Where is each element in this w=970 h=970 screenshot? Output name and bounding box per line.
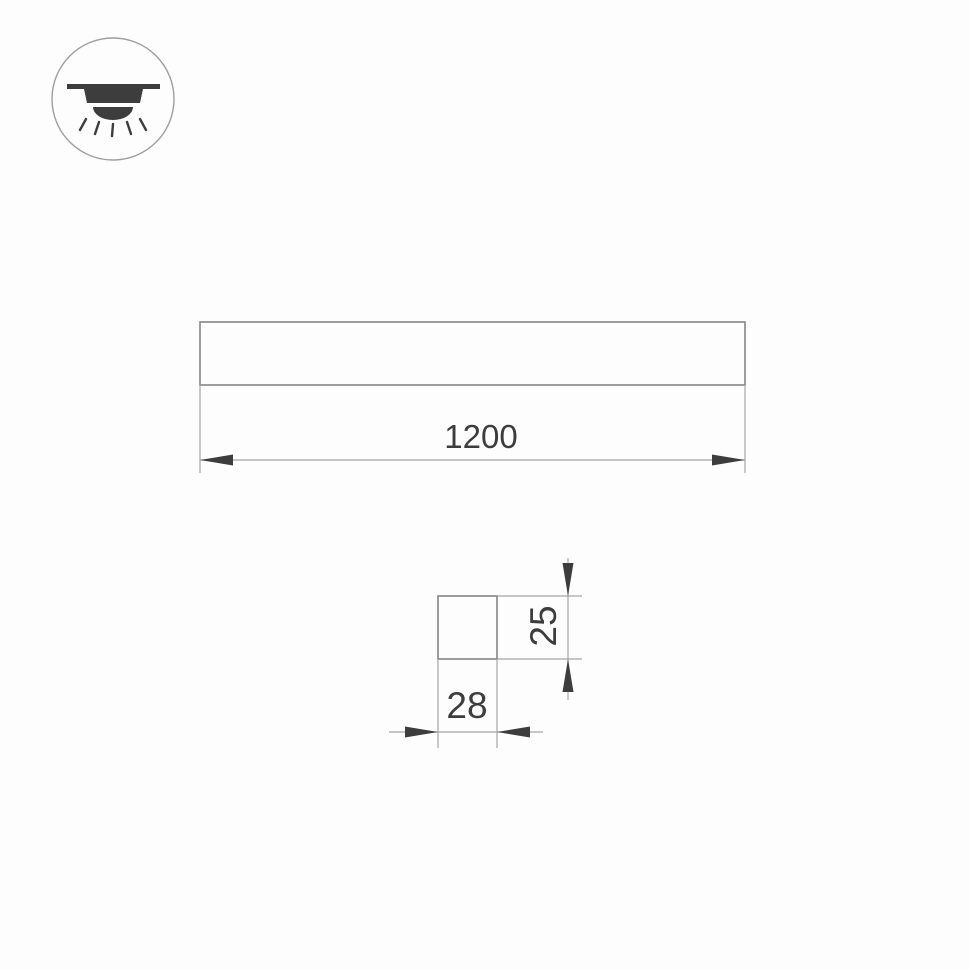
height-dimension: 25 — [497, 558, 582, 700]
icon-light-rays — [80, 119, 146, 136]
luminaire-cross-section — [438, 596, 497, 659]
width-arrow-right-icon — [497, 727, 530, 738]
width-arrow-left-icon — [405, 727, 438, 738]
dimension-drawing: 1200 25 28 — [0, 0, 970, 970]
luminaire-side-view — [200, 322, 745, 385]
length-arrow-left-icon — [200, 455, 233, 466]
icon-ceiling-bar — [67, 84, 160, 89]
side-view-outline — [200, 322, 745, 385]
width-dimension-value: 28 — [446, 685, 487, 726]
recessed-ceiling-light-icon — [52, 38, 174, 160]
height-arrow-top-icon — [563, 563, 574, 596]
length-dimension-value: 1200 — [444, 418, 517, 455]
length-arrow-right-icon — [712, 455, 745, 466]
cross-section-outline — [438, 596, 497, 659]
height-arrow-bottom-icon — [563, 659, 574, 692]
width-dimension: 28 — [389, 659, 543, 748]
technical-drawing-page: 1200 25 28 — [0, 0, 970, 970]
length-dimension: 1200 — [200, 385, 745, 473]
height-dimension-value: 25 — [523, 605, 564, 646]
icon-light-dome — [93, 107, 133, 120]
icon-fixture-body — [84, 89, 143, 103]
